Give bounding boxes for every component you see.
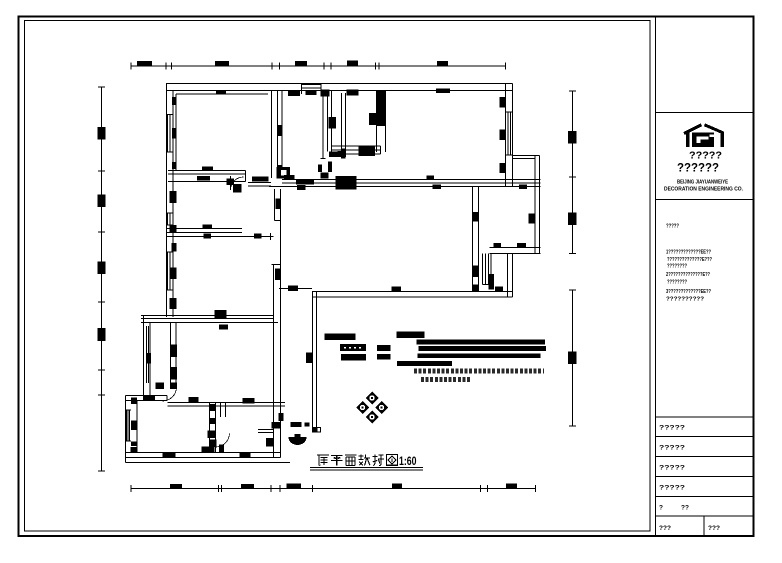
svg-text:?????: ????? <box>689 151 722 162</box>
svg-text:1?????????????EE??: 1?????????????EE?? <box>666 250 711 256</box>
svg-text:1:60: 1:60 <box>399 456 417 468</box>
svg-text:?: ? <box>659 505 663 512</box>
svg-text:?????: ????? <box>659 445 685 452</box>
svg-text:3?????????????EE??: 3?????????????EE?? <box>666 289 711 295</box>
svg-text:??????: ?????? <box>677 163 719 175</box>
svg-text:DECORATION ENGINEERING CO.: DECORATION ENGINEERING CO. <box>664 187 744 193</box>
svg-text:??????????????E???: ??????????????E??? <box>667 257 712 263</box>
svg-text:?????: ????? <box>659 425 685 432</box>
svg-text:BEIJING JIAYUANWEIYE: BEIJING JIAYUANWEIYE <box>677 180 729 186</box>
svg-text:???: ??? <box>659 525 671 532</box>
svg-text:???: ??? <box>708 525 720 532</box>
svg-text:????????: ???????? <box>667 264 687 270</box>
svg-text:?????: ????? <box>659 485 685 492</box>
svg-text:??: ?? <box>681 505 689 512</box>
svg-text:??????????: ?????????? <box>666 297 704 303</box>
svg-text:2??????????????E??: 2??????????????E?? <box>666 272 710 278</box>
svg-text:?????: ????? <box>659 465 685 472</box>
svg-text:?????: ????? <box>666 224 679 230</box>
svg-text:????????: ???????? <box>667 280 687 286</box>
